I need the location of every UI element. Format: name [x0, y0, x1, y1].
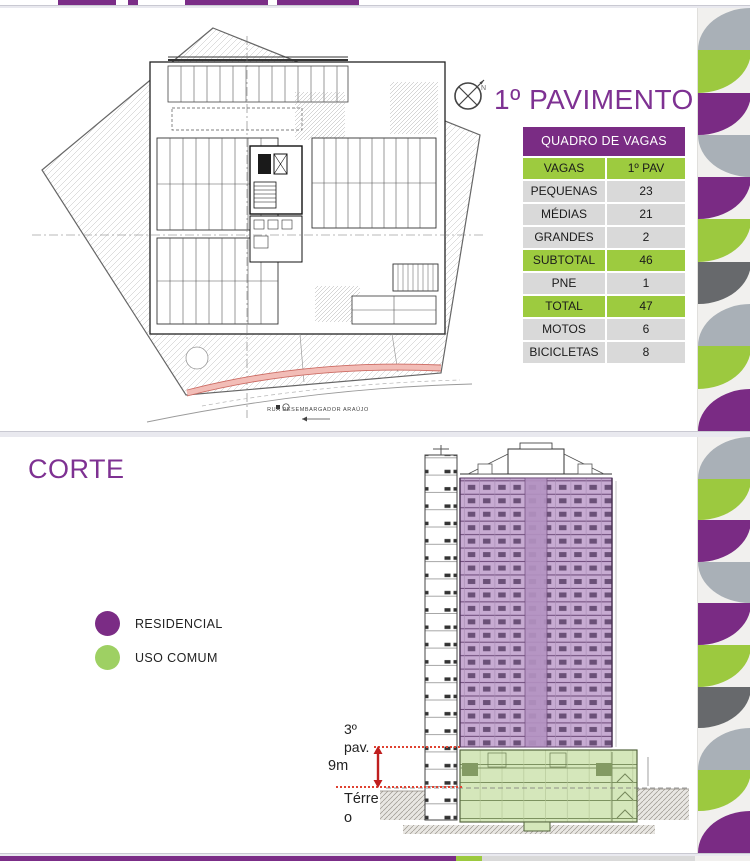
table-title: QUADRO DE VAGAS: [523, 127, 685, 156]
row-value: 6: [607, 319, 685, 340]
quarter-circle-tile: [698, 562, 750, 604]
quarter-circle-tile: [698, 770, 750, 812]
sliver-bar: [0, 856, 456, 861]
quarter-circle-tile: [698, 135, 750, 177]
table-row: MÉDIAS 21: [523, 204, 685, 225]
legend-item-residencial: RESIDENCIAL: [95, 611, 223, 636]
row-value: 23: [607, 181, 685, 202]
row-value: 21: [607, 204, 685, 225]
row-value: 8: [607, 342, 685, 363]
quarter-circle-tile: [698, 93, 750, 135]
row-label: BICICLETAS: [523, 342, 605, 363]
row-value: 1º PAV: [607, 158, 685, 179]
quarter-circle-tile: [698, 603, 750, 645]
legend-label: RESIDENCIAL: [135, 617, 223, 631]
sliver-bar: [482, 856, 695, 861]
decorative-strip: [697, 8, 750, 431]
row-label: VAGAS: [523, 158, 605, 179]
decorative-strip: [697, 437, 750, 853]
sliver-bar: [456, 856, 482, 861]
quarter-circle-tile: [698, 346, 750, 388]
next-slide-sliver: [0, 856, 750, 861]
quarter-circle-tile: [698, 811, 750, 853]
slide-2-corte: CORTE RESIDENCIAL USO COMUM: [0, 437, 750, 853]
quarter-circle-tile: [698, 389, 750, 431]
table-row: PNE 1: [523, 273, 685, 294]
presentation-page: RUA DESEMBARGADOR ARAÚJO N 1º PAVIMENTO …: [0, 0, 750, 861]
quarter-circle-tile: [698, 177, 750, 219]
street-name-label: RUA DESEMBARGADOR ARAÚJO: [267, 406, 369, 413]
quarter-circle-tile: [698, 645, 750, 687]
floor-plan-drawing: RUA DESEMBARGADOR ARAÚJO: [2, 10, 495, 428]
quadro-de-vagas-table: QUADRO DE VAGAS VAGAS 1º PAV PEQUENAS 23…: [521, 125, 687, 365]
table-row: SUBTOTAL 46: [523, 250, 685, 271]
table-row: MOTOS 6: [523, 319, 685, 340]
quarter-circle-tile: [698, 520, 750, 562]
height-label: 9m: [328, 757, 348, 776]
table-row: PEQUENAS 23: [523, 181, 685, 202]
legend-label: USO COMUM: [135, 651, 218, 665]
row-label: SUBTOTAL: [523, 250, 605, 271]
slide1-title: 1º PAVIMENTO: [494, 84, 694, 116]
row-value: 2: [607, 227, 685, 248]
row-label: MOTOS: [523, 319, 605, 340]
row-label: PEQUENAS: [523, 181, 605, 202]
quarter-circle-tile: [698, 728, 750, 770]
quarter-circle-tile: [698, 479, 750, 521]
compass-n-label: N: [481, 85, 486, 92]
table-title-row: QUADRO DE VAGAS: [523, 127, 685, 156]
quarter-circle-tile: [698, 50, 750, 92]
red-dotted-level-line-terreo: [336, 786, 462, 788]
red-dotted-level-line-3pav: [374, 746, 460, 748]
floor3-label: 3º pav.: [344, 720, 378, 756]
row-label: GRANDES: [523, 227, 605, 248]
table-row: BICICLETAS 8: [523, 342, 685, 363]
quarter-circle-tile: [698, 262, 750, 304]
legend-item-uso-comum: USO COMUM: [95, 645, 218, 670]
row-label: MÉDIAS: [523, 204, 605, 225]
quarter-circle-tile: [698, 437, 750, 479]
quarter-circle-tile: [698, 304, 750, 346]
row-value: 1: [607, 273, 685, 294]
north-arrow-icon: N: [450, 76, 488, 114]
row-label: PNE: [523, 273, 605, 294]
row-value: 47: [607, 296, 685, 317]
quarter-circle-tile: [698, 687, 750, 729]
table-row: TOTAL 47: [523, 296, 685, 317]
row-value: 46: [607, 250, 685, 271]
quarter-circle-tile: [698, 8, 750, 50]
slide-1-pavimento: RUA DESEMBARGADOR ARAÚJO N 1º PAVIMENTO …: [0, 8, 750, 431]
uso-comum-color-swatch: [95, 645, 120, 670]
residencial-color-swatch: [95, 611, 120, 636]
quarter-circle-tile: [698, 219, 750, 261]
table-row: GRANDES 2: [523, 227, 685, 248]
table-row: VAGAS 1º PAV: [523, 158, 685, 179]
row-label: TOTAL: [523, 296, 605, 317]
slide2-title: CORTE: [28, 454, 125, 485]
ground-label: Térreo: [344, 790, 386, 828]
